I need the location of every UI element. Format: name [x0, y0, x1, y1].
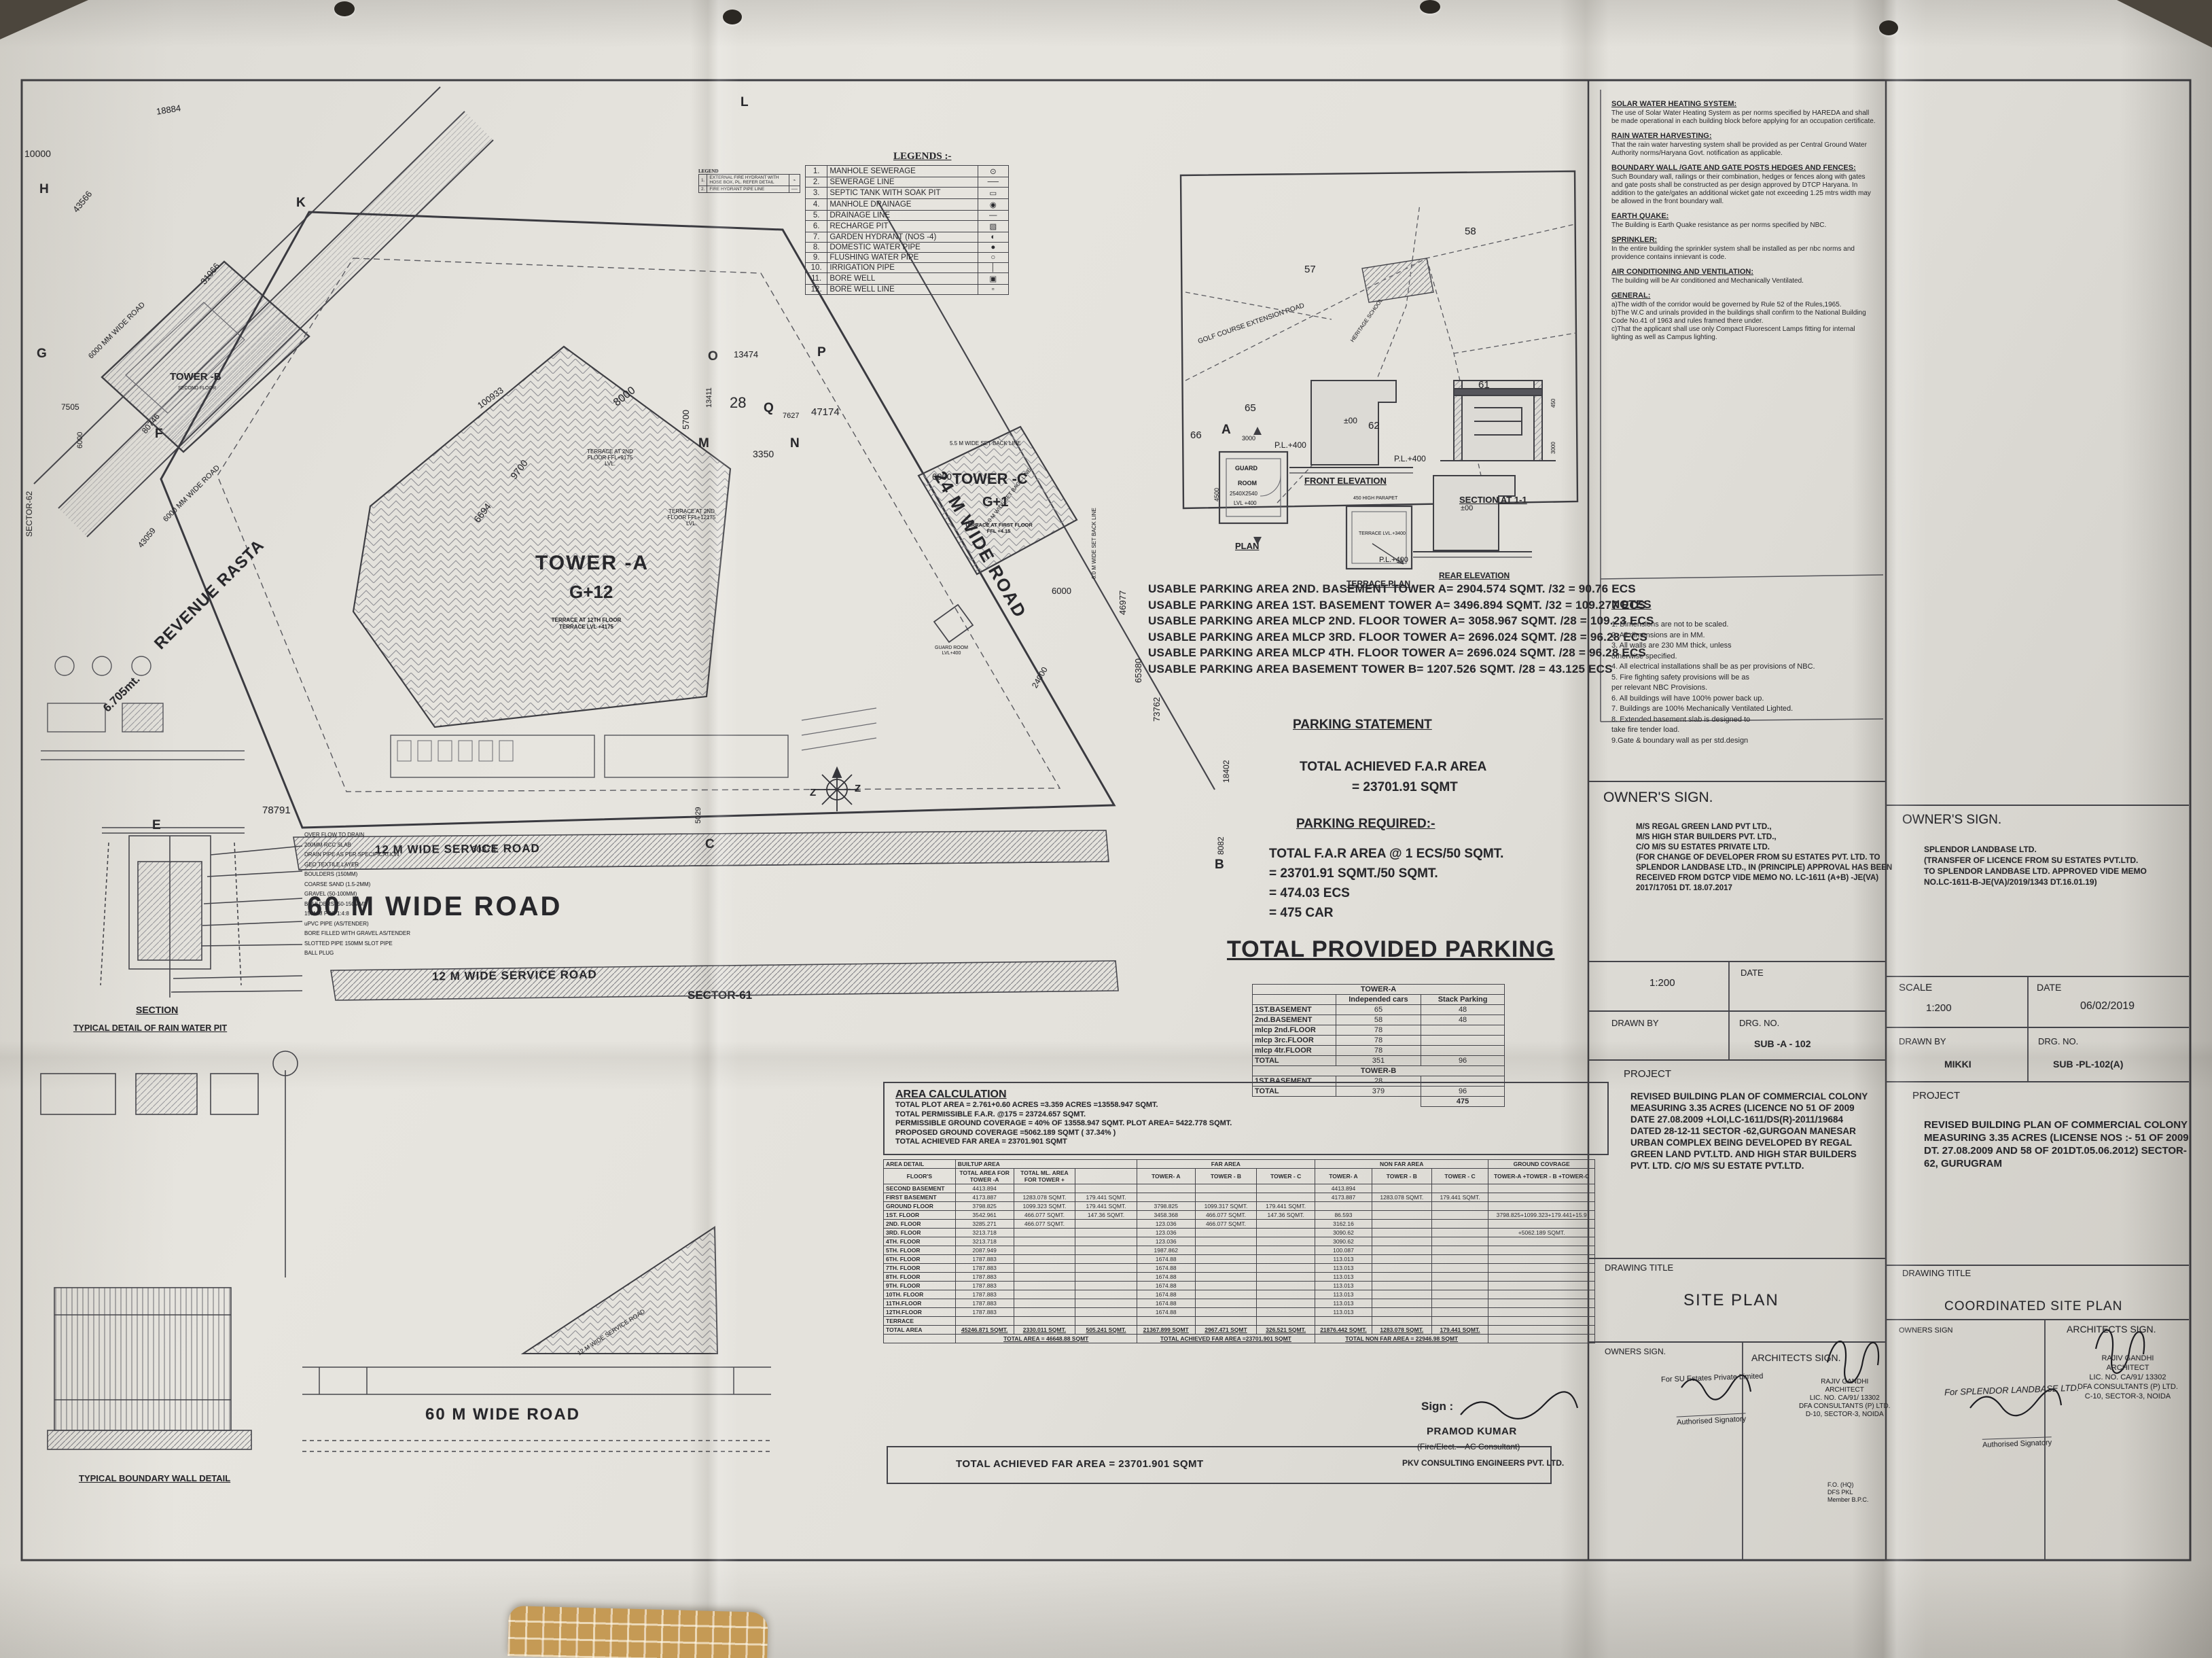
callout-label: OVER FLOW TO DRAIN	[304, 830, 433, 841]
legend-row: 11. BORE WELL ▣	[806, 273, 1009, 285]
area-h-nf-b: TOWER - B	[1372, 1169, 1431, 1184]
area-total-b3: 505.241 SQMT.	[1075, 1326, 1137, 1335]
area-row-f3	[1257, 1220, 1315, 1229]
tower-b-label: TOWER -B	[170, 371, 221, 383]
area-row-n1: 113.013	[1315, 1282, 1372, 1290]
setback-55-label: 5.5 M WIDE SET BACK LINE	[950, 440, 1021, 446]
grid-letter-p: P	[817, 345, 826, 360]
punch-hole-3	[1420, 0, 1440, 14]
area-row-f1: 1674.88	[1137, 1255, 1195, 1264]
keymap-plot-66: 66	[1190, 429, 1202, 441]
legend-symbol-icon: ▫	[978, 285, 1008, 295]
area-h-nf-c: TOWER - C	[1431, 1169, 1488, 1184]
area-row-f2: 466.077 SQMT.	[1195, 1220, 1257, 1229]
guard-plan-caption: PLAN	[1235, 541, 1259, 551]
area-row-f3	[1257, 1255, 1315, 1264]
area-row-gc	[1488, 1184, 1595, 1193]
area-row-f2	[1195, 1299, 1257, 1308]
legend-label: FLUSHING WATER PIPE	[827, 253, 978, 263]
area-row-n1: 86.593	[1315, 1211, 1372, 1220]
tbr-arch-title: ARCHITECTS SIGN.	[2067, 1324, 2156, 1335]
area-row: 5TH. FLOOR 2087.949 1987.862 100.087	[884, 1246, 1595, 1255]
legend-title: LEGENDS :-	[893, 151, 1009, 162]
provided-parking-title: TOTAL PROVIDED PARKING	[1227, 936, 1554, 963]
area-row-b3	[1075, 1317, 1137, 1326]
tbl-owner-line: (FOR CHANGE OF DEVELOPER FROM SU ESTATES…	[1636, 853, 1892, 863]
callout-label: BALL PLUG	[304, 949, 433, 959]
area-sum-far: TOTAL ACHIEVED FAR AREA =23701.901 SQMT	[1137, 1335, 1315, 1343]
area-row: 2ND. FLOOR 3285.271 466.077 SQMT. 123.03…	[884, 1220, 1595, 1229]
usable-parking-line: USABLE PARKING AREA MLCP 4TH. FLOOR TOWE…	[1148, 645, 1654, 661]
punch-hole-2	[723, 10, 742, 24]
area-h-far: FAR AREA	[1137, 1160, 1315, 1169]
legend-row: 9. FLUSHING WATER PIPE ○	[806, 253, 1009, 263]
area-calc-header: AREA CALCULATION TOTAL PLOT AREA = 2.761…	[883, 1082, 1609, 1155]
note-item: 5. Fire fighting safety provisions will …	[1611, 673, 1815, 684]
remarks-section-heading: AIR CONDITIONING AND VENTILATION:	[1611, 268, 1878, 276]
terrace-note-b: TERRACE AT 2ND FLOOR FFL+12175 LVL.	[664, 508, 719, 527]
notes-block: NOTES 1. Dimensions are not to be scaled…	[1611, 598, 1815, 746]
parking-row-cars: 78	[1336, 1046, 1421, 1056]
fire-legend-symbol-icon: ⌁	[789, 175, 800, 186]
area-row-n2	[1372, 1299, 1431, 1308]
legend-label: SEWERAGE LINE	[827, 177, 978, 188]
area-calc-line: TOTAL PLOT AREA = 2.761+0.60 ACRES =3.35…	[895, 1101, 1607, 1110]
area-row-floor: 5TH. FLOOR	[884, 1246, 956, 1255]
tbr-project-label: PROJECT	[1912, 1090, 1960, 1101]
dim-6000-towerc-2: 6000	[1052, 586, 1071, 596]
legend-row: 8. DOMESTIC WATER PIPE ●	[806, 243, 1009, 253]
area-row-b3	[1075, 1255, 1137, 1264]
tbr-drawing-title: COORDINATED SITE PLAN	[1944, 1299, 2122, 1314]
legend-row: 6. RECHARGE PIT ▨	[806, 221, 1009, 232]
legend-number: 3.	[806, 188, 827, 199]
usable-parking-line: USABLE PARKING AREA 1ST. BASEMENT TOWER …	[1148, 597, 1654, 614]
legend-symbol-icon: ⊙	[978, 166, 1008, 177]
callout-label: GEO TEXTILE LAYER	[304, 860, 433, 870]
area-h-gc: GROUND COVRAGE	[1488, 1160, 1595, 1169]
area-row-f3: 179.441 SQMT.	[1257, 1202, 1315, 1211]
tbl-owner-line: M/S HIGH STAR BUILDERS PVT. LTD.,	[1636, 832, 1892, 843]
callout-label: 150MM PCC 1:4:8	[304, 909, 433, 919]
area-row-f2	[1195, 1290, 1257, 1299]
section-dim-3000: 3000	[1550, 442, 1556, 454]
area-row-n2	[1372, 1317, 1431, 1326]
area-row-b1: 1787.883	[955, 1299, 1014, 1308]
area-row-f3	[1257, 1246, 1315, 1255]
area-row-floor: 10TH. FLOOR	[884, 1290, 956, 1299]
punch-hole-4	[1879, 20, 1898, 35]
area-row-n2	[1372, 1246, 1431, 1255]
area-row-b1: 1787.883	[955, 1290, 1014, 1299]
fabric-object	[507, 1606, 768, 1658]
tbr-arch-line: RAJIV GANDHI	[2077, 1354, 2178, 1363]
area-row-gc	[1488, 1202, 1595, 1211]
area-row-n2	[1372, 1184, 1431, 1193]
legend-label: GARDEN HYDRANT (NOS -4)	[827, 232, 978, 243]
parking-row-floor: 1ST.BASEMENT	[1253, 1005, 1336, 1015]
dim-9700: 9700	[508, 457, 530, 480]
area-row-f2	[1195, 1229, 1257, 1237]
area-row-n1: 113.013	[1315, 1299, 1372, 1308]
area-h-total-a: TOTAL AREA FOR TOWER -A	[955, 1169, 1014, 1184]
area-row-b3: 179.441 SQMT.	[1075, 1202, 1137, 1211]
dim-10000: 10000	[24, 148, 51, 159]
dim-13474: 13474	[734, 349, 758, 359]
area-row-gc	[1488, 1264, 1595, 1273]
grid-letter-g: G	[37, 347, 47, 361]
dim-7505: 7505	[61, 402, 79, 412]
area-row-n1	[1315, 1317, 1372, 1326]
tbr-drawing-title-label: DRAWING TITLE	[1902, 1268, 1971, 1278]
area-row-gc	[1488, 1282, 1595, 1290]
area-row-n1: 113.013	[1315, 1255, 1372, 1264]
area-row-n2	[1372, 1308, 1431, 1317]
tbr-owner-lines: SPLENDOR LANDBASE LTD.(TRANSFER OF LICEN…	[1924, 844, 2147, 887]
usable-parking-line: USABLE PARKING AREA BASEMENT TOWER B= 12…	[1148, 661, 1654, 677]
area-row: 12TH.FLOOR 1787.883 1674.88 113.013	[884, 1308, 1595, 1317]
area-total-b2: 2330.011 SQMT.	[1014, 1326, 1075, 1335]
dim-24000: 24000	[1030, 665, 1050, 690]
parking-row-stack: 48	[1421, 1015, 1505, 1025]
remarks-section-heading: EARTH QUAKE:	[1611, 212, 1878, 220]
fire-legend-number: 1.	[699, 175, 707, 186]
area-row-b1: 3798.825	[955, 1202, 1014, 1211]
dim-3350: 3350	[753, 448, 774, 459]
keymap-plot-57: 57	[1304, 264, 1316, 275]
legend-row: 10. IRRIGATION PIPE │	[806, 263, 1009, 273]
area-row: 3RD. FLOOR 3213.718 123.036 3090.62 +506…	[884, 1229, 1595, 1237]
area-row-f3	[1257, 1308, 1315, 1317]
road-12m-service-label-2: 12 M WIDE SERVICE ROAD	[432, 968, 597, 984]
tbl-owner-lines: M/S REGAL GREEN LAND PVT LTD.,M/S HIGH S…	[1636, 822, 1892, 894]
area-sum-builtup: TOTAL AREA = 46648.88 SQMT	[955, 1335, 1137, 1343]
tbr-project-text: REVISED BUILDING PLAN OF COMMERCIAL COLO…	[1924, 1118, 2189, 1170]
tbr-scale-label: SCALE	[1899, 982, 1932, 993]
sector-62-label: SECTOR-62	[24, 491, 34, 537]
area-row-f3	[1257, 1237, 1315, 1246]
area-row-n1: 113.013	[1315, 1264, 1372, 1273]
area-row-b1	[955, 1317, 1014, 1326]
area-row-n2	[1372, 1211, 1431, 1220]
area-row-gc	[1488, 1273, 1595, 1282]
area-row-f1	[1137, 1317, 1195, 1326]
usable-parking-block: USABLE PARKING AREA 2ND. BASEMENT TOWER …	[1148, 581, 1654, 677]
area-h-total-blank	[1075, 1169, 1137, 1184]
parking-row-stack: 48	[1421, 1005, 1505, 1015]
dim-65380: 65380	[1133, 658, 1143, 683]
area-row-gc	[1488, 1255, 1595, 1264]
area-row: 10TH. FLOOR 1787.883 1674.88 113.013	[884, 1290, 1595, 1299]
general-heading: GENERAL:	[1611, 292, 1878, 300]
area-row-b2	[1014, 1229, 1075, 1237]
area-row-b1: 4173.887	[955, 1193, 1014, 1202]
tbr-arch-line: DFA CONSULTANTS (P) LTD.	[2077, 1382, 2178, 1392]
area-total-f3: 326.521 SQMT.	[1257, 1326, 1315, 1335]
area-row-gc	[1488, 1193, 1595, 1202]
legend-number: 11.	[806, 273, 827, 285]
callout-label: BOULDERS (50-150MM)	[304, 900, 433, 910]
area-row-n1: 3090.62	[1315, 1237, 1372, 1246]
compass-z-west: Z	[810, 787, 816, 798]
tower-a-terrace-note: TERRACE AT 12TH FLOOR TERRACE LVL +4175	[542, 617, 630, 631]
terrace-note-a: TERRACE AT 2ND FLOOR FFL+9175 LVL.	[583, 448, 637, 467]
area-row-floor: TERRACE	[884, 1317, 956, 1326]
area-row-b1: 3542.961	[955, 1211, 1014, 1220]
area-row-f3	[1257, 1193, 1315, 1202]
legend-number: 1.	[806, 166, 827, 177]
tbr-auth-signatory: Authorised Signatory	[1982, 1436, 2052, 1449]
fire-legend-title: LEGEND	[698, 169, 800, 174]
area-row-f2	[1195, 1237, 1257, 1246]
area-row: 9TH. FLOOR 1787.883 1674.88 113.013	[884, 1282, 1595, 1290]
terrace-parapet-note: 450 HIGH PARAPET	[1353, 496, 1397, 501]
area-row-n2	[1372, 1273, 1431, 1282]
area-total-f2: 2967.471 SQMT	[1195, 1326, 1257, 1335]
dim-8000: 8000	[611, 385, 638, 409]
dim-6694: 6694	[471, 501, 493, 524]
area-row-n2	[1372, 1237, 1431, 1246]
area-row-b3: 147.36 SQMT.	[1075, 1211, 1137, 1220]
area-row-b3	[1075, 1246, 1137, 1255]
usable-parking-line: USABLE PARKING AREA 2ND. BASEMENT TOWER …	[1148, 581, 1654, 597]
area-row-b1: 1787.883	[955, 1273, 1014, 1282]
legend-symbol-icon: │	[978, 263, 1008, 273]
dim-18402: 18402	[1221, 760, 1231, 783]
parking-row: mlcp 4tr.FLOOR 78	[1253, 1046, 1505, 1056]
parking-row-cars: 78	[1336, 1036, 1421, 1046]
dim-18884: 18884	[156, 103, 181, 116]
parking-row-stack	[1421, 1025, 1505, 1036]
grid-letter-e: E	[152, 818, 161, 833]
tbr-drg-value: SUB -PL-102(A)	[2053, 1059, 2123, 1070]
road-6000mm-label-2: 6000 MM WIDE ROAD	[162, 463, 221, 523]
area-row-gc	[1488, 1317, 1595, 1326]
tbl-drawn-label: DRAWN BY	[1611, 1018, 1659, 1028]
legend-label: DRAINAGE LINE	[827, 211, 978, 221]
area-h-far-a: TOWER- A	[1137, 1169, 1195, 1184]
area-row-floor: 1ST. FLOOR	[884, 1211, 956, 1220]
area-row-f1: 1674.88	[1137, 1282, 1195, 1290]
punch-hole-1	[334, 1, 355, 16]
area-row-b2: 466.077 SQMT.	[1014, 1211, 1075, 1220]
area-row-floor: 8TH. FLOOR	[884, 1273, 956, 1282]
dim-78791: 78791	[262, 805, 291, 816]
area-row-f1	[1137, 1184, 1195, 1193]
note-item: 3. All walls are 230 MM thick, unless	[1611, 641, 1815, 652]
legend-number: 9.	[806, 253, 827, 263]
area-table: AREA DETAIL BUILTUP AREA FAR AREA NON FA…	[883, 1159, 1595, 1343]
area-row-f1	[1137, 1193, 1195, 1202]
area-row-n3	[1431, 1229, 1488, 1237]
remarks-section-body: The building will be Air conditioned and…	[1611, 277, 1878, 285]
road-6000mm-label-1: 6000 MM WIDE ROAD	[87, 300, 147, 360]
parking-required-title: PARKING REQUIRED:-	[1296, 817, 1435, 832]
tbl-fo-line: DFS PKL	[1827, 1489, 1868, 1496]
tbl-arch-line: RAJIV GANDHI	[1799, 1378, 1890, 1386]
area-row: 1ST. FLOOR 3542.961 466.077 SQMT. 147.36…	[884, 1211, 1595, 1220]
rear-elevation-caption: REAR ELEVATION	[1439, 571, 1510, 580]
area-row-n1: 4413.894	[1315, 1184, 1372, 1193]
tbr-owner-line: TO SPLENDOR LANDBASE LTD. APPROVED VIDE …	[1924, 866, 2147, 877]
area-row-n2	[1372, 1202, 1431, 1211]
guard-room-plan-note: GUARD ROOM LVL+400	[926, 646, 977, 656]
area-row-f2: 466.077 SQMT.	[1195, 1211, 1257, 1220]
area-row-f1: 1987.862	[1137, 1246, 1195, 1255]
area-row-b1: 4413.894	[955, 1184, 1014, 1193]
area-row-b1: 3213.718	[955, 1229, 1014, 1237]
dim-5029: 5029	[694, 807, 702, 824]
tbl-project-label: PROJECT	[1624, 1068, 1671, 1080]
legend-row: 5. DRAINAGE LINE —	[806, 211, 1009, 221]
grid-letter-c: C	[705, 837, 715, 852]
legend-number: 7.	[806, 232, 827, 243]
parking-tower-b-header: TOWER-B	[1253, 1066, 1505, 1076]
area-row-b2	[1014, 1317, 1075, 1326]
area-row-n3	[1431, 1308, 1488, 1317]
area-row-b1: 3213.718	[955, 1237, 1014, 1246]
tbl-owner-line: 2017/17051 DT. 18.07.2017	[1636, 883, 1892, 894]
tbr-owners2-title: OWNERS SIGN	[1899, 1326, 1952, 1335]
area-row-b1: 1787.883	[955, 1308, 1014, 1317]
area-calc-line: TOTAL ACHIEVED FAR AREA = 23701.901 SQMT	[895, 1137, 1607, 1147]
area-row-n3	[1431, 1299, 1488, 1308]
area-row-b2	[1014, 1282, 1075, 1290]
area-row-gc	[1488, 1220, 1595, 1229]
keymap-plot-62: 62	[1368, 420, 1380, 431]
tbr-owner-line: SPLENDOR LANDBASE LTD.	[1924, 844, 2147, 855]
parking-row-stack	[1421, 1036, 1505, 1046]
remarks-section-body: The Building is Earth Quake resistance a…	[1611, 222, 1878, 230]
area-row-n1: 113.013	[1315, 1290, 1372, 1299]
tbl-owner-line: SPLENDOR LANDBASE LTD., IN (PRINCIPLE) A…	[1636, 863, 1892, 873]
area-row-n2	[1372, 1290, 1431, 1299]
area-total-f1: 21367.899 SQMT	[1137, 1326, 1195, 1335]
area-h-far-c: TOWER - C	[1257, 1169, 1315, 1184]
dim-43566: 43566	[71, 189, 94, 215]
area-row-n1: 3090.62	[1315, 1229, 1372, 1237]
remarks-section-heading: SOLAR WATER HEATING SYSTEM:	[1611, 100, 1878, 108]
area-row-b3	[1075, 1237, 1137, 1246]
tbr-arch-line: C-10, SECTOR-3, NOIDA	[2077, 1392, 2178, 1401]
area-row-b3	[1075, 1264, 1137, 1273]
tbr-drawn-label: DRAWN BY	[1899, 1036, 1946, 1046]
parking-row: 1ST.BASEMENT 65 48	[1253, 1005, 1505, 1015]
area-h-builtup: BUILTUP AREA	[955, 1160, 1137, 1169]
rear-elev-pl400: P.L.+400	[1379, 556, 1408, 564]
area-calc-line: PERMISSIBLE GROUND COVERAGE = 40% OF 135…	[895, 1119, 1607, 1129]
area-row-b2	[1014, 1237, 1075, 1246]
tbl-drawing-title-label: DRAWING TITLE	[1605, 1263, 1673, 1273]
total-far-band-text: TOTAL ACHIEVED FAR AREA = 23701.901 SQMT	[956, 1458, 1204, 1470]
guard-room-line1: GUARD	[1235, 465, 1257, 472]
area-row-f3	[1257, 1184, 1315, 1193]
tbl-drawing-title: SITE PLAN	[1683, 1291, 1779, 1310]
area-total-n3: 179.441 SQMT.	[1431, 1326, 1488, 1335]
parking-required-line: = 475 CAR	[1269, 903, 1503, 923]
area-row-f1: 123.036	[1137, 1220, 1195, 1229]
area-row-f2	[1195, 1255, 1257, 1264]
remarks-section-body: Such Boundary wall, railings or their co…	[1611, 173, 1878, 206]
area-row-b1: 2087.949	[955, 1246, 1014, 1255]
rear-elev-level: ±00	[1461, 504, 1473, 512]
area-row-f3	[1257, 1273, 1315, 1282]
fire-legend-row: 2. FIRE HYDRANT PIPE LINE ──	[699, 186, 800, 193]
area-h-total-ml: TOTAL ML. AREA FOR TOWER +	[1014, 1169, 1075, 1184]
parking-row-cars: 58	[1336, 1015, 1421, 1025]
area-row-f1: 1674.88	[1137, 1273, 1195, 1282]
usable-parking-line: USABLE PARKING AREA MLCP 2ND. FLOOR TOWE…	[1148, 613, 1654, 629]
area-h-nf-a: TOWER- A	[1315, 1169, 1372, 1184]
parking-required-lines: TOTAL F.A.R AREA @ 1 ECS/50 SQMT.= 23701…	[1269, 844, 1503, 923]
general-item: a)The width of the corridor would be gov…	[1611, 301, 1878, 309]
tbl-arch-line: ARCHITECT	[1799, 1386, 1890, 1394]
legend-number: 4.	[806, 199, 827, 211]
legend-number: 5.	[806, 211, 827, 221]
tbl-owner-line: RECEIVED FROM DGTCP VIDE MEMO NO. LC-161…	[1636, 873, 1892, 883]
area-row: 8TH. FLOOR 1787.883 1674.88 113.013	[884, 1273, 1595, 1282]
tbl-arch-line: LIC. NO. CA/91/ 13302	[1799, 1394, 1890, 1403]
note-item: take fire tender load.	[1611, 725, 1815, 736]
note-item: 1. Dimensions are not to be scaled.	[1611, 620, 1815, 631]
area-row-n1	[1315, 1202, 1372, 1211]
parking-row-floor: 2nd.BASEMENT	[1253, 1015, 1336, 1025]
remarks-section: AIR CONDITIONING AND VENTILATION: The bu…	[1611, 268, 1878, 285]
grid-letter-n: N	[790, 436, 800, 451]
area-row-f2	[1195, 1184, 1257, 1193]
area-row-n3	[1431, 1255, 1488, 1264]
area-row-n2	[1372, 1229, 1431, 1237]
usable-parking-line: USABLE PARKING AREA MLCP 3RD. FLOOR TOWE…	[1148, 629, 1654, 646]
area-total-floor: TOTAL AREA	[884, 1326, 956, 1335]
area-row-b2: 1099.323 SQMT.	[1014, 1202, 1075, 1211]
remarks-section: EARTH QUAKE: The Building is Earth Quake…	[1611, 212, 1878, 230]
guard-dim-4500: 4500	[1213, 488, 1220, 501]
tbr-owner-line: (TRANSFER OF LICENCE FROM SU ESTATES PVT…	[1924, 855, 2147, 866]
sector-61-label: SECTOR-61	[688, 989, 752, 1002]
legend-number: 8.	[806, 243, 827, 253]
legend-row: 2. SEWERAGE LINE ──	[806, 177, 1009, 188]
area-sum-nonfar: TOTAL NON FAR AREA = 22946.98 SQMT	[1315, 1335, 1488, 1343]
note-item: 8. Extended basement slab is designed to	[1611, 715, 1815, 726]
area-row-f1: 1674.88	[1137, 1308, 1195, 1317]
tbr-date-label: DATE	[2037, 982, 2061, 993]
parking-col-stack: Stack Parking	[1421, 995, 1505, 1005]
remarks-section: BOUNDARY WALL /GATE AND GATE POSTS HEDGE…	[1611, 164, 1878, 206]
area-row-n1: 113.013	[1315, 1308, 1372, 1317]
area-row-f2	[1195, 1308, 1257, 1317]
tbl-owner-line: M/S REGAL GREEN LAND PVT LTD.,	[1636, 822, 1892, 832]
area-row: 6TH. FLOOR 1787.883 1674.88 113.013	[884, 1255, 1595, 1264]
legend-label: SEPTIC TANK WITH SOAK PIT	[827, 188, 978, 199]
tbl-owner-line: C/O M/S SU ESTATES PRIVATE LTD.	[1636, 843, 1892, 853]
remarks-section-body: That the rain water harvesting system sh…	[1611, 141, 1878, 158]
legend-block: LEGENDS :- 1. MANHOLE SEWERAGE ⊙ 2. SEWE…	[805, 151, 1009, 295]
area-row-n3	[1431, 1317, 1488, 1326]
signer-name: PRAMOD KUMAR	[1427, 1426, 1517, 1437]
tbl-arch-lines: RAJIV GANDHIARCHITECTLIC. NO. CA/91/ 133…	[1799, 1378, 1890, 1419]
dim-73762: 73762	[1152, 697, 1162, 722]
tbr-drg-label: DRG. NO.	[2038, 1036, 2078, 1046]
legend-row: 7. GARDEN HYDRANT (NOS -4) ◐	[806, 232, 1009, 243]
general-item: c)That the applicant shall use only Comp…	[1611, 325, 1878, 342]
tbr-arch-lines: RAJIV GANDHIARCHITECTLIC. NO. CA/91/ 133…	[2077, 1354, 2178, 1401]
grid-letter-b: B	[1215, 858, 1224, 872]
tbl-owners-title: OWNER'S SIGN.	[1603, 790, 1713, 806]
area-row-n3	[1431, 1282, 1488, 1290]
rain-pit-section-caption: SECTION	[136, 1004, 178, 1015]
area-row-b1: 1787.883	[955, 1264, 1014, 1273]
